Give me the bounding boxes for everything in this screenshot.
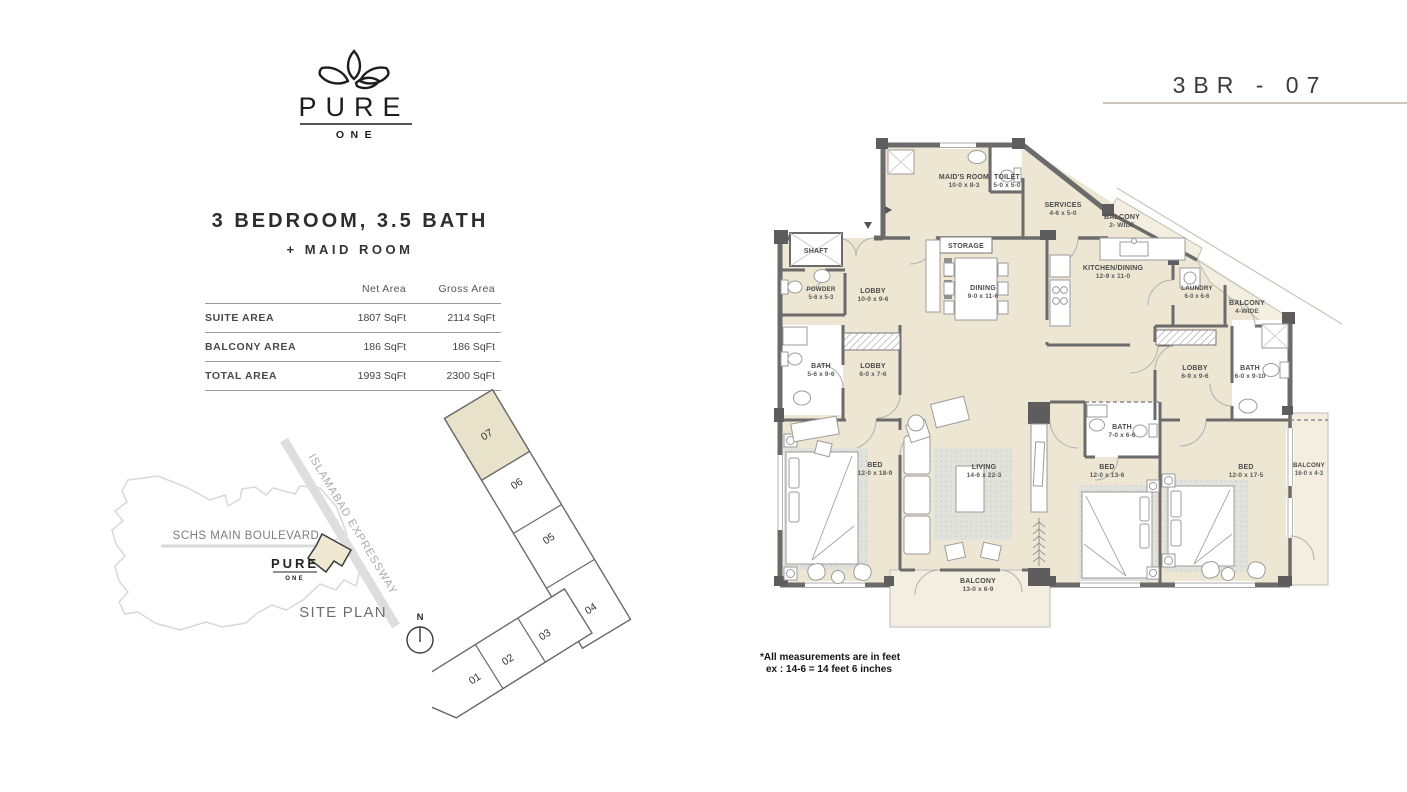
svg-text:9-0 x 11-6: 9-0 x 11-6	[968, 293, 999, 300]
row-net: 1807 SqFt	[335, 304, 412, 333]
svg-text:BALCONY: BALCONY	[1104, 214, 1140, 221]
svg-text:BED: BED	[1238, 464, 1253, 471]
svg-text:BALCONY: BALCONY	[1229, 300, 1265, 307]
note-line-2: ex : 14-6 = 14 feet 6 inches	[760, 664, 900, 676]
mini-logo: PURE ONE	[271, 556, 319, 582]
svg-text:STORAGE: STORAGE	[948, 243, 984, 250]
room-label-balcony-bottom: BALCONY 13-0 x 6-9	[960, 578, 996, 593]
svg-text:LOBBY: LOBBY	[860, 288, 886, 295]
key-plan: 07 06 05 04 03 02 01	[432, 386, 652, 722]
svg-text:BATH: BATH	[1112, 424, 1132, 431]
lotus-icon	[320, 51, 389, 88]
svg-text:5-0 x 5-0: 5-0 x 5-0	[993, 182, 1021, 189]
svg-text:BED: BED	[867, 462, 882, 469]
measurement-note: *All measurements are in feet ex : 14-6 …	[760, 652, 900, 676]
svg-text:12-0 x 18-9: 12-0 x 18-9	[858, 470, 893, 477]
summary-line1: 3 BEDROOM, 3.5 BATH	[175, 210, 525, 233]
svg-text:2- WIDE: 2- WIDE	[1109, 222, 1135, 229]
expressway-label: ISLAMABAD EXPRESSWAY	[306, 452, 400, 597]
svg-text:6-0 x 9-10: 6-0 x 9-10	[1234, 373, 1265, 380]
svg-text:KITCHEN/DINING: KITCHEN/DINING	[1083, 265, 1144, 272]
svg-text:16-0 x 4-3: 16-0 x 4-3	[1295, 471, 1324, 477]
north-label: N	[417, 612, 424, 623]
brochure-page: PURE ONE 3 BEDROOM, 3.5 BATH + MAID ROOM…	[0, 0, 1407, 792]
svg-text:7-0 x 6-6: 7-0 x 6-6	[1108, 432, 1136, 439]
svg-text:TOILET: TOILET	[994, 174, 1020, 181]
area-table-header-row: Net Area Gross Area	[205, 279, 501, 304]
svg-text:4-WIDE: 4-WIDE	[1235, 308, 1259, 315]
svg-text:SERVICES: SERVICES	[1045, 202, 1082, 209]
svg-text:BED: BED	[1099, 464, 1114, 471]
room-label-toilet: TOILET 5-0 x 5-0	[993, 174, 1021, 189]
boulevard-label: SCHS MAIN BOULEVARD	[173, 530, 320, 542]
svg-text:6-9 x 9-6: 6-9 x 9-6	[1181, 373, 1209, 380]
svg-text:13-0 x 6-9: 13-0 x 6-9	[962, 586, 993, 593]
svg-text:12-0 x 17-5: 12-0 x 17-5	[1229, 472, 1264, 479]
brand-logo: PURE ONE	[272, 46, 437, 158]
room-label-dining: DINING 9-0 x 11-6	[968, 285, 999, 300]
north-compass-icon: N	[407, 612, 433, 653]
unit-summary-title: 3 BEDROOM, 3.5 BATH + MAID ROOM	[175, 210, 525, 257]
row-net: 1993 SqFt	[335, 362, 412, 391]
area-table-corner	[205, 279, 335, 304]
room-label-lobby-main: LOBBY 10-0 x 9-6	[857, 288, 888, 303]
door-marker-icon	[864, 222, 872, 229]
row-gross: 186 SqFt	[412, 333, 501, 362]
svg-text:BATH: BATH	[1240, 365, 1260, 372]
svg-text:6-0 x 7-6: 6-0 x 7-6	[859, 371, 887, 378]
unit-title: 3BR - 07	[1100, 72, 1400, 99]
room-label-bath-middle: BATH 7-0 x 6-6	[1108, 424, 1136, 439]
table-row: BALCONY AREA 186 SqFt 186 SqFt	[205, 333, 501, 362]
svg-text:10-0 x 9-6: 10-0 x 9-6	[857, 296, 888, 303]
svg-text:BALCONY: BALCONY	[960, 578, 996, 585]
svg-text:LIVING: LIVING	[972, 464, 997, 471]
svg-text:6-0 x 6-6: 6-0 x 6-6	[1185, 294, 1210, 300]
svg-text:10-0 x 8-3: 10-0 x 8-3	[948, 182, 979, 189]
col-net-area: Net Area	[335, 279, 412, 304]
room-label-storage: STORAGE	[948, 243, 984, 250]
svg-text:12-9 x 11-0: 12-9 x 11-0	[1096, 273, 1131, 280]
svg-text:12-0 x 13-6: 12-0 x 13-6	[1090, 472, 1125, 479]
svg-text:LOBBY: LOBBY	[860, 363, 886, 370]
site-plan-map: SCHS MAIN BOULEVARD ISLAMABAD EXPRESSWAY…	[98, 418, 442, 684]
room-label-bath-left: BATH 5-6 x 9-6	[807, 363, 835, 378]
brand-name: PURE	[298, 92, 409, 122]
svg-text:BATH: BATH	[811, 363, 831, 370]
svg-text:LOBBY: LOBBY	[1182, 365, 1208, 372]
table-row: SUITE AREA 1807 SqFt 2114 SqFt	[205, 304, 501, 333]
row-net: 186 SqFt	[335, 333, 412, 362]
svg-text:5-6 x 5-3: 5-6 x 5-3	[809, 295, 834, 301]
room-label-balcony-2wide: BALCONY 2- WIDE	[1104, 214, 1140, 229]
svg-text:MAID'S ROOM: MAID'S ROOM	[939, 174, 989, 181]
unit-title-underline	[1103, 102, 1407, 104]
row-gross: 2114 SqFt	[412, 304, 501, 333]
svg-text:5-6 x 9-6: 5-6 x 9-6	[807, 371, 835, 378]
svg-text:DINING: DINING	[970, 285, 996, 292]
room-label-lobby-right: LOBBY 6-9 x 9-6	[1181, 365, 1209, 380]
svg-text:14-6 x 22-3: 14-6 x 22-3	[967, 472, 1002, 479]
site-plan-caption: SITE PLAN	[299, 604, 387, 621]
svg-text:POWDER: POWDER	[806, 286, 835, 293]
svg-text:SHAFT: SHAFT	[804, 248, 829, 255]
note-line-1: *All measurements are in feet	[760, 652, 900, 664]
area-table: Net Area Gross Area SUITE AREA 1807 SqFt…	[205, 279, 501, 391]
room-label-shaft: SHAFT	[804, 248, 829, 255]
mini-logo-name: PURE	[271, 556, 319, 571]
row-label: SUITE AREA	[205, 304, 335, 333]
room-label-services: SERVICES 4-6 x 5-0	[1045, 202, 1082, 217]
svg-text:BALCONY: BALCONY	[1293, 462, 1326, 469]
svg-text:4-6 x 5-0: 4-6 x 5-0	[1049, 210, 1077, 217]
row-label: BALCONY AREA	[205, 333, 335, 362]
col-gross-area: Gross Area	[412, 279, 501, 304]
room-label-lobby-left: LOBBY 6-0 x 7-6	[859, 363, 887, 378]
brand-sub: ONE	[336, 129, 378, 141]
mini-logo-sub: ONE	[285, 576, 305, 582]
row-label: TOTAL AREA	[205, 362, 335, 391]
floor-plan: MAID'S ROOM 10-0 x 8-3 TOILET 5-0 x 5-0 …	[750, 130, 1360, 650]
summary-line2: + MAID ROOM	[175, 242, 525, 257]
svg-text:LAUNDRY: LAUNDRY	[1181, 285, 1213, 292]
